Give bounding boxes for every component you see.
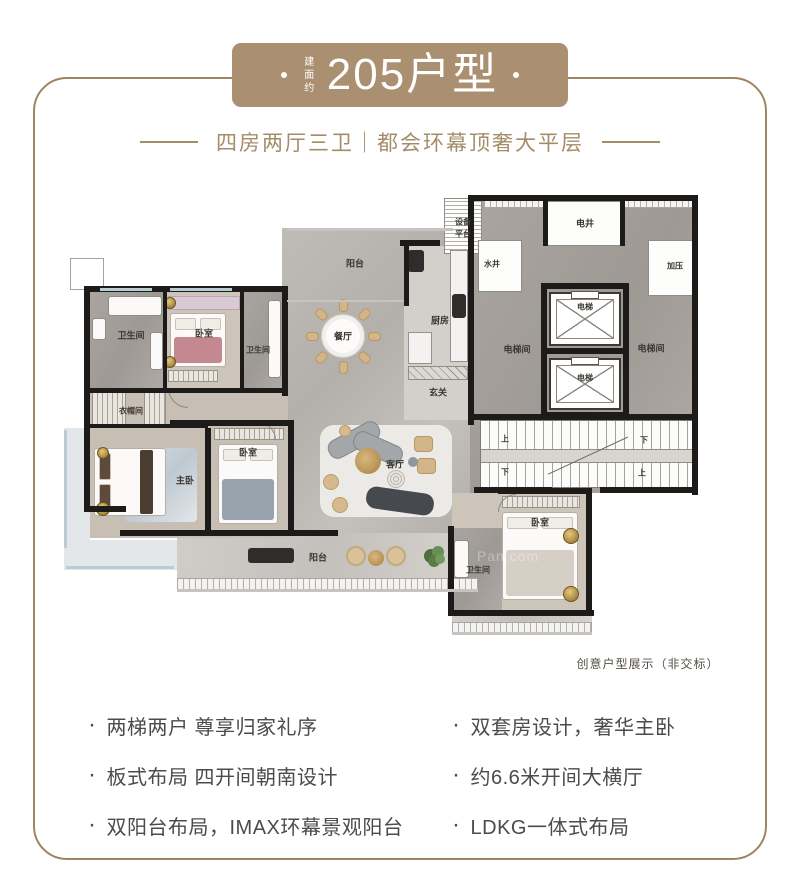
- wall-segment: [448, 610, 594, 616]
- bullet-dot-icon: ·: [452, 713, 461, 737]
- room-label: 平台: [455, 229, 471, 240]
- bed: [170, 313, 226, 367]
- bullet-dot-icon: ·: [452, 763, 461, 787]
- plant-icon: [424, 546, 446, 568]
- medal-icon: [563, 528, 579, 544]
- dark-item: [248, 548, 294, 563]
- fixture-item: [150, 332, 163, 370]
- wall-segment: [86, 388, 286, 393]
- feature-text: 两梯两户 尊享归家礼序: [107, 711, 318, 740]
- page-title: 205户型: [327, 53, 498, 97]
- window-line: [170, 288, 232, 291]
- feature-text: 约6.6米开间大横厅: [471, 761, 644, 790]
- wall-segment: [86, 424, 208, 428]
- elevator-door-icon: [571, 291, 599, 299]
- pillow-icon: [175, 318, 196, 330]
- pouf-icon: [339, 425, 351, 437]
- banner-right-dot-icon: [513, 72, 519, 78]
- wardrobe-pink-item: [168, 296, 240, 310]
- room-label: 餐厅: [334, 330, 352, 343]
- wall-segment: [498, 488, 592, 494]
- dark-item: [452, 294, 466, 318]
- wall-segment: [448, 526, 454, 616]
- wall-segment: [620, 198, 625, 246]
- elevator: [549, 292, 621, 346]
- room-label: 电梯间: [637, 342, 664, 355]
- subtitle-right-dash: [602, 141, 660, 143]
- window-line: [177, 589, 478, 592]
- wall-segment: [586, 490, 592, 616]
- wall-segment: [163, 292, 167, 388]
- area-prefix: 建面约: [302, 56, 312, 95]
- wall-segment: [543, 198, 548, 246]
- room-label: 电井: [576, 217, 594, 230]
- window-line: [287, 300, 404, 302]
- runner-item: [140, 450, 153, 514]
- wall-segment: [541, 283, 629, 289]
- floorplan-poster: 建面约 205户型 四房两厅三卫｜都会环幕顶奢大平层 卫生间卧室卫生间阳台餐厅厨…: [0, 0, 800, 895]
- plant-leaf-icon: [435, 554, 445, 564]
- pouf-pattern-icon: [387, 470, 405, 488]
- feature-text: 板式布局 四开间朝南设计: [107, 761, 339, 790]
- bullet-dot-icon: ·: [88, 813, 97, 837]
- room-label: 卧室: [239, 446, 257, 459]
- room-label: 上: [501, 434, 509, 445]
- elevator-x-icon: [556, 365, 614, 403]
- rattan-icon: [386, 546, 406, 566]
- chair-beige-item: [414, 436, 433, 452]
- wall-segment: [84, 506, 126, 512]
- pouf-icon: [332, 497, 348, 513]
- counter-item: [408, 332, 432, 364]
- wall-segment: [120, 530, 338, 536]
- room-label: 水井: [484, 259, 500, 270]
- wall-segment: [400, 240, 440, 246]
- wall-segment: [541, 348, 629, 354]
- window-line: [100, 288, 152, 291]
- room-label: 主卧: [176, 474, 194, 487]
- wall-segment: [541, 283, 547, 418]
- medal-icon: [97, 447, 109, 459]
- room-label: 下: [501, 467, 509, 478]
- gold-table-icon: [368, 550, 384, 566]
- room-label: 衣帽间: [119, 406, 143, 417]
- wall-segment: [600, 487, 698, 493]
- subtitle-left-dash: [140, 141, 198, 143]
- dining-chair: [339, 361, 348, 374]
- room-label: 玄关: [429, 386, 447, 399]
- rattan-icon: [346, 546, 366, 566]
- feature-text: 双套房设计，奢华主卧: [471, 711, 676, 740]
- region-stairs: [480, 420, 694, 488]
- bullet-dot-icon: ·: [88, 713, 97, 737]
- wall-segment: [205, 428, 211, 532]
- feature-list-left: ·两梯两户 尊享归家礼序·板式布局 四开间朝南设计·双阳台布局，IMAX环幕景观…: [88, 700, 403, 850]
- chair-beige-item: [417, 458, 436, 474]
- room-label: 卧室: [531, 516, 549, 529]
- room-label: 阳台: [309, 551, 327, 564]
- room-label: 加压: [667, 261, 683, 272]
- feature-item: ·LDKG一体式布局: [452, 800, 676, 850]
- feature-item: ·约6.6米开间大横厅: [452, 750, 676, 800]
- pouf-icon: [323, 474, 339, 490]
- blanket-icon: [174, 337, 222, 363]
- dining-chair: [368, 332, 381, 341]
- subtitle-row: 四房两厅三卫｜都会环幕顶奢大平层: [0, 127, 800, 157]
- room-label: 客厅: [386, 458, 404, 471]
- hatch-v-item: [144, 390, 166, 426]
- room-label: 下: [640, 435, 648, 446]
- fixture-item: [92, 318, 106, 340]
- title-banner: 建面约 205户型: [232, 43, 568, 107]
- feature-item: ·两梯两户 尊享归家礼序: [88, 700, 403, 750]
- fixture-item: [268, 300, 281, 378]
- hatch-v-item: [168, 370, 218, 382]
- feature-text: LDKG一体式布局: [471, 811, 630, 840]
- wall-segment: [288, 420, 294, 532]
- wall-segment: [692, 195, 698, 495]
- feature-item: ·板式布局 四开间朝南设计: [88, 750, 403, 800]
- dot-gray-icon: [408, 457, 418, 467]
- fixture-item: [108, 296, 162, 316]
- blanket-icon: [222, 479, 274, 520]
- wall-segment: [468, 195, 698, 201]
- elevator-door-icon: [571, 357, 599, 365]
- wall-segment: [404, 246, 409, 306]
- wall-segment: [468, 414, 698, 420]
- medal-icon: [563, 586, 579, 602]
- room-label: 厨房: [431, 314, 449, 327]
- window-line: [66, 566, 174, 569]
- room-label: 电梯: [577, 302, 593, 313]
- gold-table-icon: [355, 448, 381, 474]
- hatch-d-item: [408, 366, 468, 380]
- wall-segment: [240, 292, 244, 388]
- room-label: 上: [638, 468, 646, 479]
- wall-segment: [84, 286, 90, 512]
- room-label: 卧室: [195, 327, 213, 340]
- subtitle-text: 四房两厅三卫｜都会环幕顶奢大平层: [216, 127, 584, 157]
- wall-segment: [282, 286, 288, 396]
- room-label: 卫生间: [117, 329, 144, 342]
- room-label: 电梯间: [503, 343, 530, 356]
- dark-item: [408, 250, 424, 272]
- bullet-dot-icon: ·: [452, 813, 461, 837]
- window-line: [64, 430, 67, 548]
- room-label: 卫生间: [246, 345, 270, 356]
- room-label: 阳台: [346, 257, 364, 270]
- feature-item: ·双套房设计，奢华主卧: [452, 700, 676, 750]
- elevator: [549, 358, 621, 410]
- bullet-dot-icon: ·: [88, 763, 97, 787]
- disclaimer-caption: 创意户型展示（非交标）: [540, 655, 756, 672]
- window-line: [287, 228, 453, 231]
- room-label: 卫生间: [466, 565, 490, 576]
- wall-segment: [623, 283, 629, 418]
- banner-left-dot-icon: [281, 72, 287, 78]
- feature-text: 双阳台布局，IMAX环幕景观阳台: [107, 811, 404, 840]
- dining-chair: [306, 332, 319, 341]
- room-label: 设备: [455, 217, 471, 228]
- room-label: 电梯: [577, 373, 593, 384]
- watermark: Pan.com: [477, 548, 539, 564]
- feature-item: ·双阳台布局，IMAX环幕景观阳台: [88, 800, 403, 850]
- window-line: [452, 632, 592, 635]
- feature-list-right: ·双套房设计，奢华主卧·约6.6米开间大横厅·LDKG一体式布局: [452, 700, 676, 850]
